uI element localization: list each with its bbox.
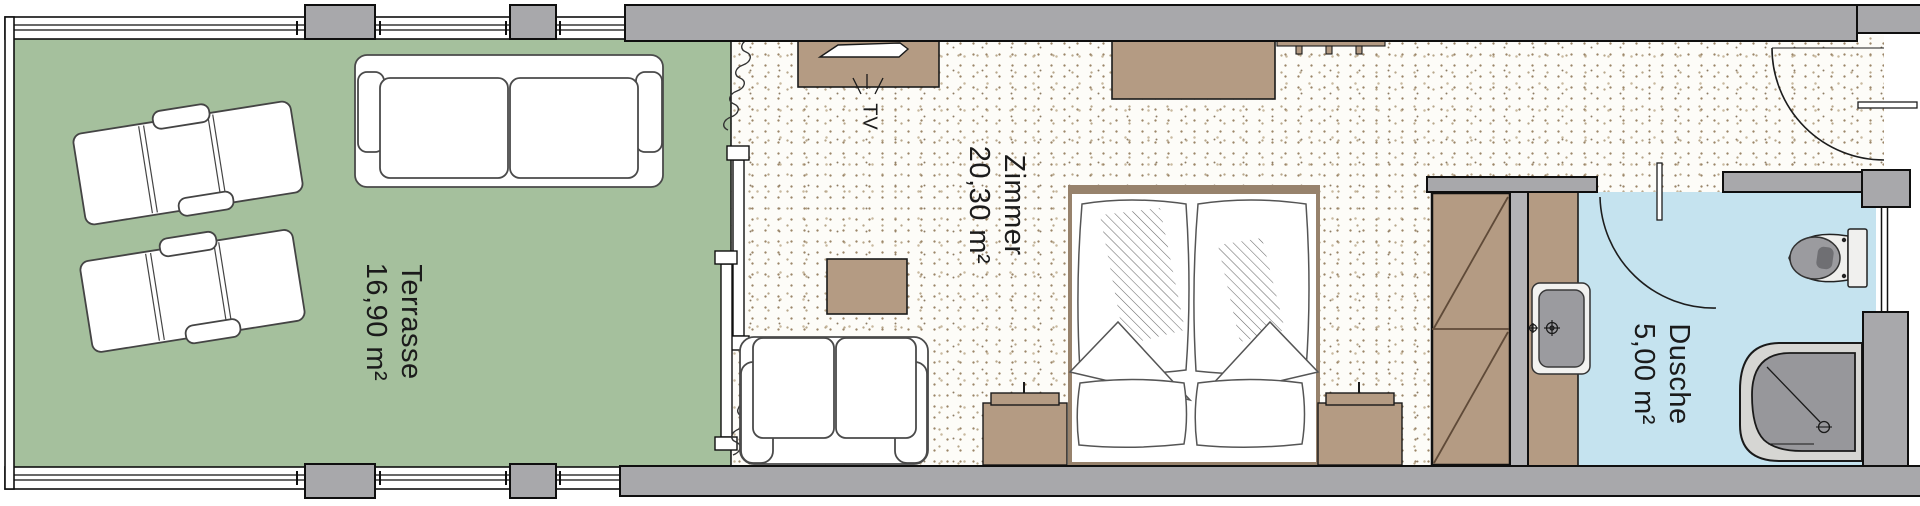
wall-top-right xyxy=(1857,5,1920,33)
room-area: 20,30 m² xyxy=(961,146,996,264)
bathroom-label: Dusche 5,00 m² xyxy=(1626,323,1696,425)
bathroom-name: Dusche xyxy=(1661,323,1696,425)
terrace-sofa xyxy=(355,55,663,187)
pillow-left xyxy=(1077,380,1186,448)
nightstand-left xyxy=(983,382,1067,465)
wall-block-right-upper xyxy=(1862,170,1910,207)
tv-sideboard xyxy=(798,33,939,94)
coffee-table-icon xyxy=(827,259,907,314)
terrace-name: Terrasse xyxy=(393,263,428,381)
wall-block-right-lower xyxy=(1863,312,1908,466)
room-label: Zimmer 20,30 m² xyxy=(961,146,1031,264)
tv-label: TV xyxy=(858,103,881,131)
coat-rack-icon xyxy=(1277,40,1385,54)
toilet-icon xyxy=(1789,229,1867,287)
room-sofa xyxy=(740,337,928,464)
terrace-area: 16,90 m² xyxy=(358,263,393,381)
shower-icon xyxy=(1740,343,1862,461)
wall-cap-wardrobe xyxy=(1427,177,1597,192)
wardrobe-icon xyxy=(1432,193,1510,465)
double-bed-icon xyxy=(1068,185,1320,464)
wall-partition xyxy=(1510,192,1528,466)
floor-plan: Terrasse 16,90 m² Zimmer 20,30 m² Dusche… xyxy=(0,0,1920,506)
entry-door-swing-icon xyxy=(1772,48,1917,160)
window-icon xyxy=(1876,205,1893,314)
lounge-chair-2 xyxy=(78,219,307,359)
plan-linework xyxy=(0,0,1920,506)
pillow-right xyxy=(1195,380,1304,448)
lounge-chair-1 xyxy=(71,90,305,231)
terrace-label: Terrasse 16,90 m² xyxy=(358,263,428,381)
room-name: Zimmer xyxy=(996,146,1031,264)
wall-bottom xyxy=(620,466,1920,496)
sideboard xyxy=(1112,39,1275,99)
wall-top xyxy=(625,5,1857,41)
bathroom-area: 5,00 m² xyxy=(1626,323,1661,425)
sink-icon xyxy=(1528,283,1590,374)
nightstand-right xyxy=(1318,382,1402,465)
bathroom-door-swing-icon xyxy=(1600,163,1716,308)
